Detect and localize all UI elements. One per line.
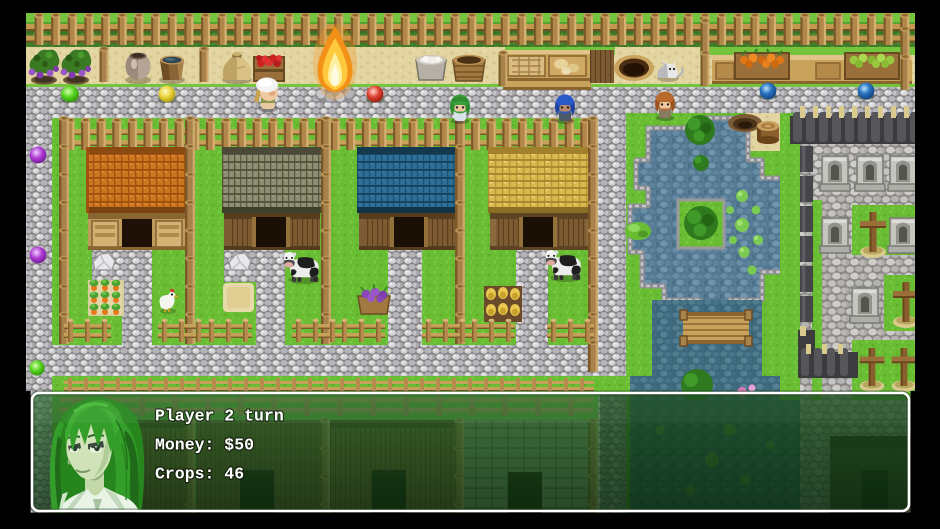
svg-text:Player 2 turn: Player 2 turn xyxy=(155,407,284,426)
svg-text:Crops: 46: Crops: 46 xyxy=(155,465,244,484)
svg-text:Money: $50: Money: $50 xyxy=(155,436,254,455)
